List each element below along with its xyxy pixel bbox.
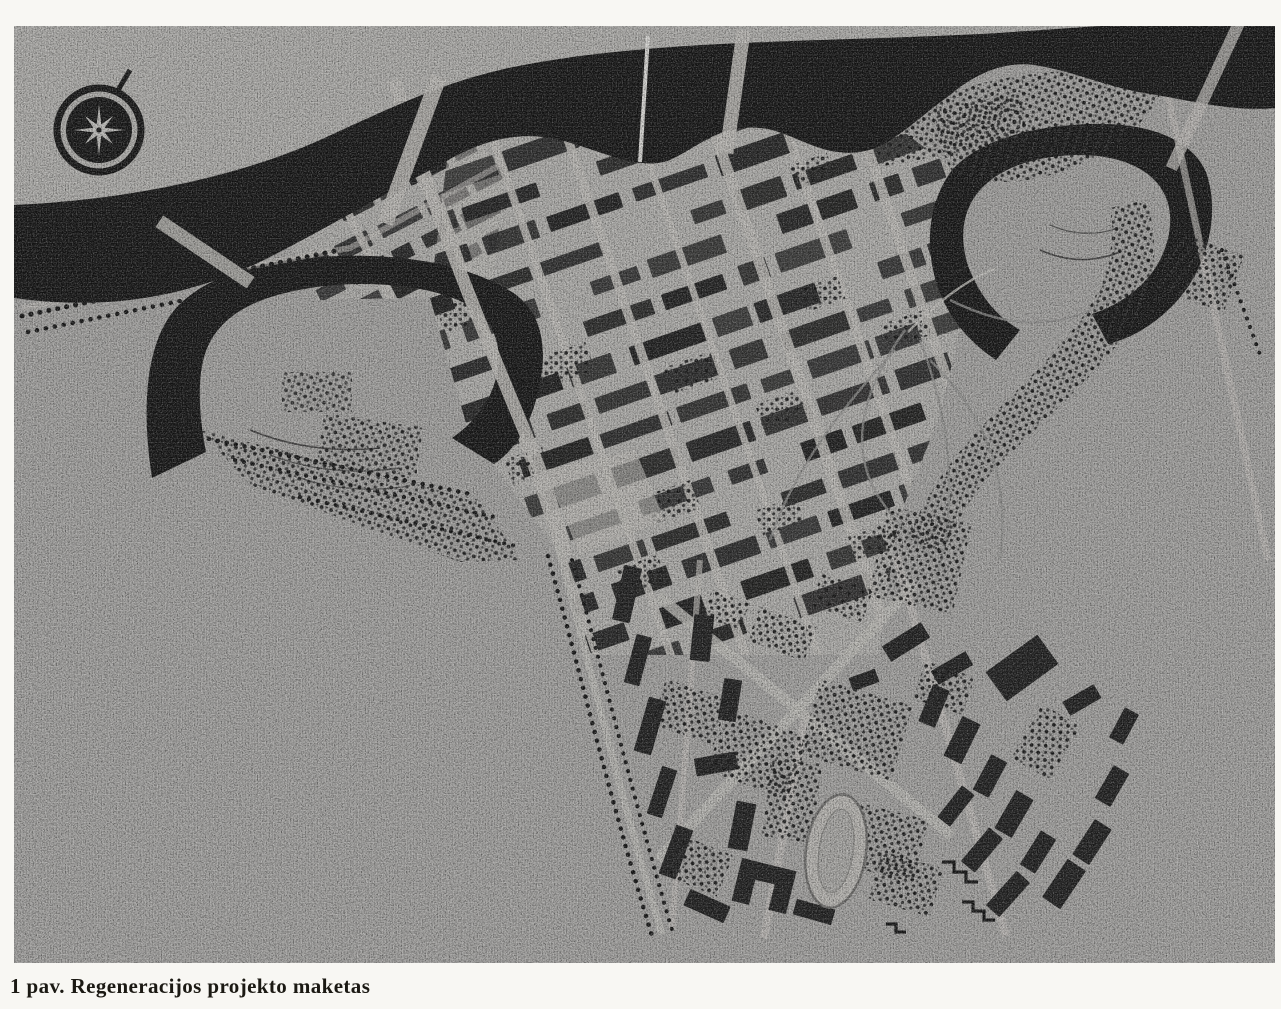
model-photograph — [0, 0, 1281, 1009]
figure-caption: 1 pav. Regeneracijos projekto maketas — [10, 974, 370, 999]
scanned-page: 1 pav. Regeneracijos projekto maketas — [0, 0, 1281, 1009]
halftone-grain-light — [14, 26, 1275, 963]
figure-photo-area — [0, 0, 1281, 1009]
